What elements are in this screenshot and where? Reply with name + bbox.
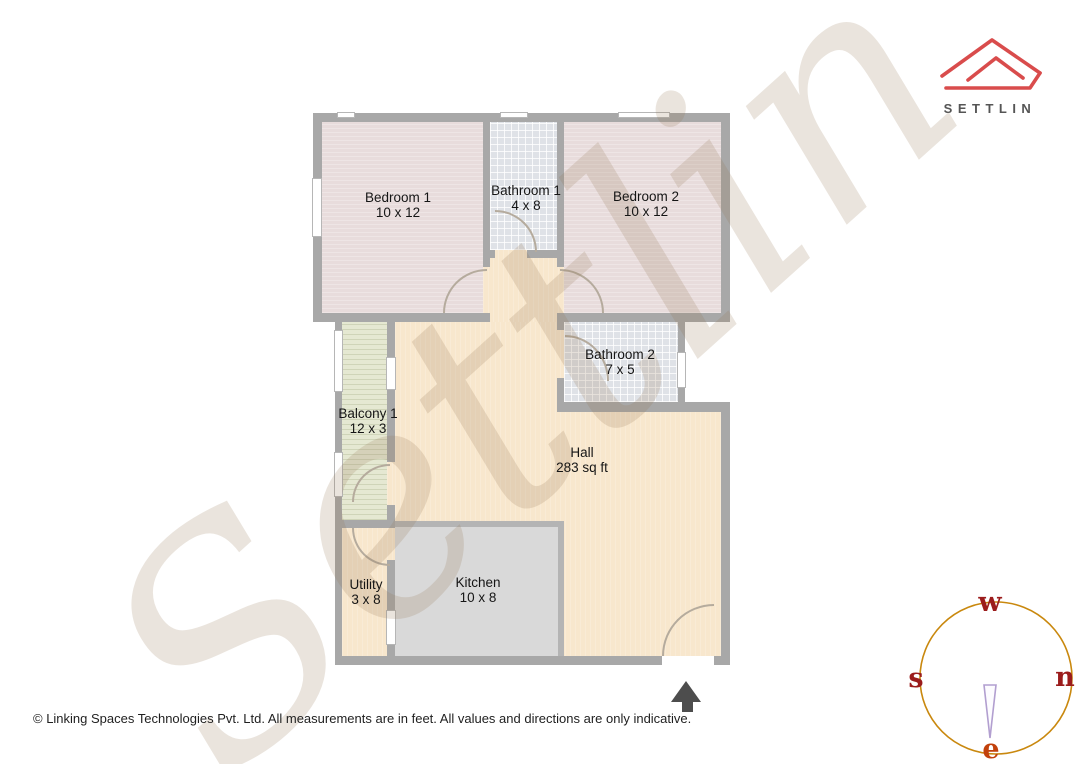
wall-bathroom2-right-2: [678, 388, 685, 402]
wall-hall-right: [721, 402, 730, 665]
window-balcony-left-1: [334, 330, 343, 392]
hall-corridor-floor: [483, 250, 564, 322]
compass-south-label: s: [908, 663, 923, 694]
wall-bedroom2-bottom: [557, 313, 730, 322]
wall-bedroom1-bottom: [313, 313, 490, 322]
wall-bedroom1-bathroom1: [483, 113, 490, 267]
floorplan-page: Settlin Bedroom 1 10 x 12 Bathroom 1 4 x…: [0, 0, 1080, 764]
window-bedroom1-left: [312, 178, 322, 237]
room-name: Kitchen: [455, 576, 500, 591]
kitchen-top-edge: [395, 521, 564, 527]
wall-bathroom2-bottom: [557, 402, 730, 412]
compass-west-label: w: [977, 587, 1002, 618]
label-hall: Hall 283 sq ft: [556, 446, 608, 475]
room-dimensions: 10 x 12: [613, 205, 679, 220]
label-bathroom-2: Bathroom 2 7 x 5: [585, 348, 655, 377]
room-name: Bathroom 2: [585, 348, 655, 363]
window-bathroom2-right: [677, 352, 686, 388]
compass-needle-icon: [984, 685, 996, 738]
room-name: Bedroom 2: [613, 190, 679, 205]
window-bedroom1-top: [337, 112, 355, 118]
wall-right-upper: [721, 113, 730, 322]
compass-ring: [920, 602, 1072, 754]
label-balcony-1: Balcony 1 12 x 3: [338, 407, 397, 436]
kitchen-right-edge: [558, 521, 564, 656]
wall-bathroom2-right-1: [678, 322, 685, 352]
room-name: Balcony 1: [338, 407, 397, 422]
room-dimensions: 4 x 8: [491, 199, 561, 214]
label-bathroom-1: Bathroom 1 4 x 8: [491, 184, 561, 213]
window-bedroom2-top: [618, 112, 670, 118]
wall-bottom-left: [335, 656, 662, 665]
room-dimensions: 12 x 3: [338, 422, 397, 437]
compass-rose: w s n e: [903, 582, 1080, 764]
settlin-logo-text: SETTLIN: [925, 101, 1055, 116]
wall-bottom-right: [714, 656, 730, 665]
room-name: Utility: [350, 578, 383, 593]
entrance-arrow-icon: [671, 681, 701, 702]
label-utility: Utility 3 x 8: [350, 578, 383, 607]
compass-north-label: n: [1055, 662, 1075, 693]
wall-balcony-hall-3: [387, 505, 395, 528]
wall-utility-kitchen-1: [387, 560, 395, 610]
window-balcony-hall: [386, 357, 396, 390]
room-dimensions: 10 x 8: [455, 591, 500, 606]
label-kitchen: Kitchen 10 x 8: [455, 576, 500, 605]
room-dimensions: 7 x 5: [585, 363, 655, 378]
room-name: Hall: [556, 446, 608, 461]
window-bathroom1-top: [500, 112, 528, 118]
label-bedroom-1: Bedroom 1 10 x 12: [365, 191, 431, 220]
compass-east-label: e: [982, 734, 999, 764]
exterior-notch: [685, 322, 730, 402]
wall-utility-left: [335, 528, 342, 665]
window-balcony-left-2: [334, 452, 343, 497]
wall-balcony-hall-1: [387, 322, 395, 357]
room-dimensions: 283 sq ft: [556, 461, 608, 476]
wall-balcony-bottom: [335, 520, 395, 528]
room-name: Bathroom 1: [491, 184, 561, 199]
room-dimensions: 10 x 12: [365, 206, 431, 221]
copyright-text: © Linking Spaces Technologies Pvt. Ltd. …: [33, 711, 691, 726]
wall-bathroom2-left-1: [557, 322, 564, 330]
settlin-logo: SETTLIN: [925, 28, 1055, 116]
window-utility-kitchen: [386, 610, 396, 645]
label-bedroom-2: Bedroom 2 10 x 12: [613, 190, 679, 219]
wall-bathroom1-bottom-left: [483, 250, 495, 258]
settlin-roof-icon: [930, 28, 1050, 94]
room-dimensions: 3 x 8: [350, 593, 383, 608]
room-name: Bedroom 1: [365, 191, 431, 206]
